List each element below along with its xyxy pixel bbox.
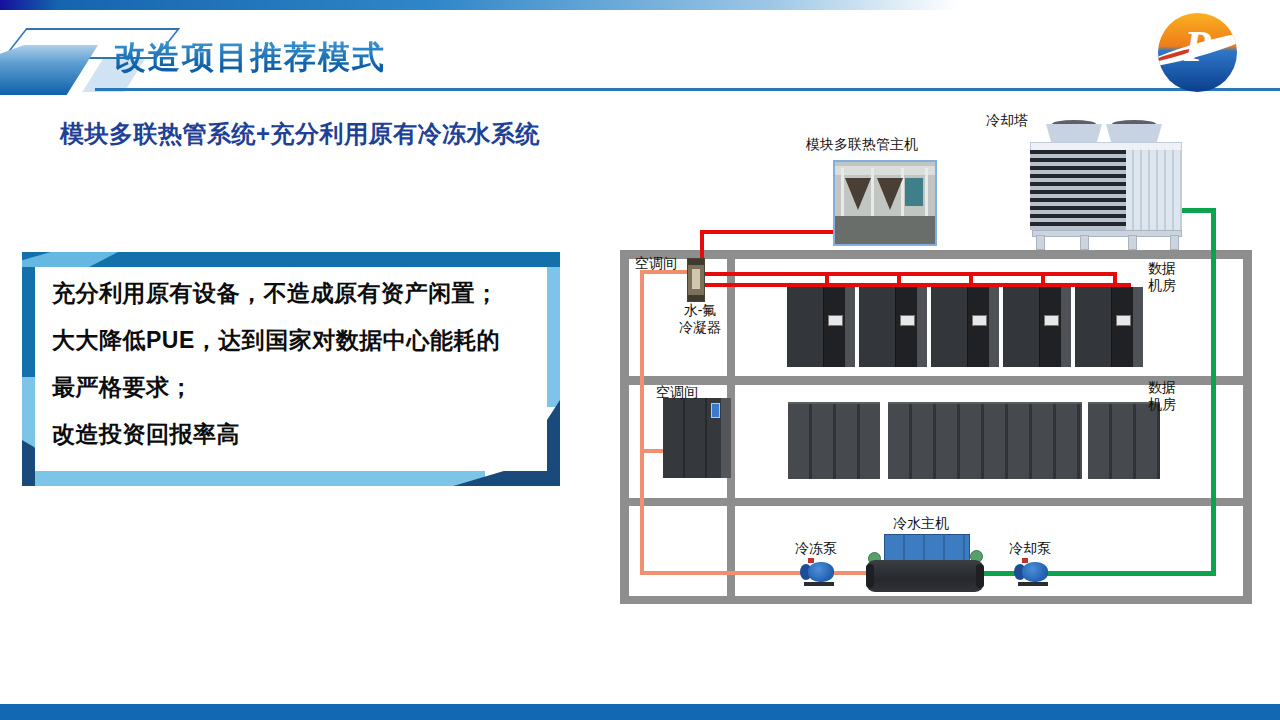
slide-subtitle: 模块多联热管系统+充分利用原有冷冻水系统 <box>60 118 540 150</box>
crac-display <box>828 315 843 326</box>
top-accent-bar <box>0 0 960 10</box>
building-frame-left <box>620 250 629 604</box>
info-box-text: 充分利用原有设备，不造成原有资产闲置； 大大降低PUE，达到国家对数据中心能耗的… <box>52 270 542 458</box>
crac-display <box>1044 315 1059 326</box>
ac-room-label-floor1: 空调间 <box>635 255 677 272</box>
condenser-device <box>687 258 705 302</box>
building-frame-right <box>1243 250 1252 604</box>
rack-row <box>1088 402 1160 479</box>
cooling-tower-image <box>1028 120 1192 248</box>
page-title: 改造项目推荐模式 <box>114 36 386 80</box>
cooling-water-pump-icon <box>1014 558 1052 586</box>
crac-display <box>1116 315 1131 326</box>
cooling-tower-label: 冷却塔 <box>986 112 1028 129</box>
rack-row <box>788 402 880 479</box>
data-room-label-floor2: 数据 机房 <box>1148 379 1176 413</box>
crac-unit <box>859 287 927 367</box>
bullet-line: 大大降低PUE，达到国家对数据中心能耗的 <box>52 317 542 364</box>
chilled-water-pump-label: 冷冻泵 <box>795 540 837 557</box>
pipe-refrigerant <box>700 230 838 234</box>
crac-display <box>900 315 915 326</box>
building-frame-bottom <box>620 596 1252 604</box>
crac-unit <box>1003 287 1071 367</box>
header-underline <box>95 88 1280 91</box>
bullet-line: 改造投资回报率高 <box>52 411 542 458</box>
crac-cabinet-floor2 <box>663 398 731 478</box>
crac-unit <box>787 287 855 367</box>
bullet-line: 充分利用原有设备，不造成原有资产闲置； <box>52 270 542 317</box>
deco-parallelogram-fill <box>0 45 98 95</box>
crac-display <box>972 315 987 326</box>
company-logo: P <box>1158 13 1237 92</box>
ac-room-label-floor2: 空调间 <box>656 384 698 401</box>
crac-logo <box>711 403 720 418</box>
pipe-refrigerant-supply <box>700 272 1117 276</box>
crac-unit <box>931 287 999 367</box>
chiller-image <box>866 532 984 596</box>
crac-row-floor1 <box>787 287 1143 367</box>
cooling-tower-base <box>1032 230 1182 237</box>
heat-pipe-unit-label: 模块多联热管主机 <box>806 136 918 153</box>
slide-canvas: 改造项目推荐模式 P 模块多联热管系统+充分利用原有冷冻水系统 充分利用原有设备… <box>0 0 1280 720</box>
bottom-bar <box>0 704 1280 720</box>
heat-pipe-unit-image <box>833 160 937 246</box>
pipe-cooling-water-riser <box>1211 208 1216 576</box>
cooling-water-pump-label: 冷却泵 <box>1009 540 1051 557</box>
logo-letter: P <box>1158 21 1237 92</box>
chiller-label: 冷水主机 <box>893 515 949 532</box>
bullet-line: 最严格要求； <box>52 364 542 411</box>
data-room-label-floor1: 数据 机房 <box>1148 260 1176 294</box>
pipe-chilled-water-riser <box>640 270 644 575</box>
info-box: 充分利用原有设备，不造成原有资产闲置； 大大降低PUE，达到国家对数据中心能耗的… <box>22 252 560 486</box>
chilled-water-pump-icon <box>800 558 838 586</box>
rack-row <box>888 402 1082 479</box>
crac-unit <box>1075 287 1143 367</box>
building-frame-top <box>620 250 1252 259</box>
condenser-label: 水-氟 冷凝器 <box>662 302 738 336</box>
floor-divider-2 <box>629 498 1243 506</box>
